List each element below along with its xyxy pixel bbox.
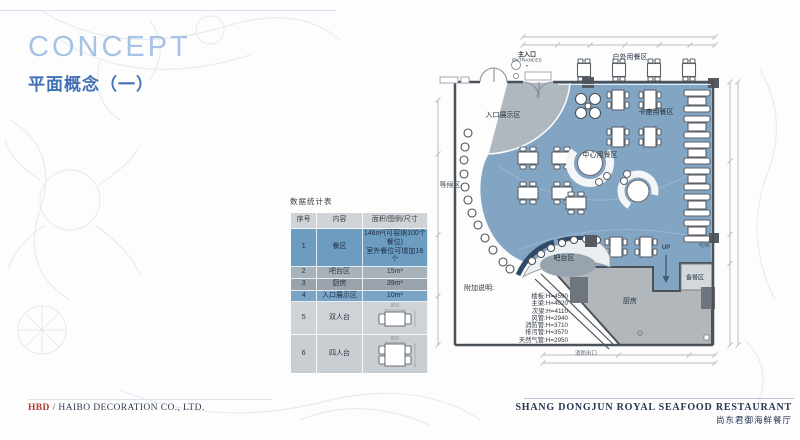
cell-no: 1 bbox=[291, 229, 317, 267]
cell-content: 双人台 bbox=[317, 302, 362, 335]
cell-no: 4 bbox=[291, 290, 317, 302]
table-row: 3 厨房 39m² bbox=[291, 278, 428, 290]
label-elevator: 电梯 bbox=[698, 241, 709, 249]
label-center-dining: 中心用餐区 bbox=[583, 150, 618, 160]
cell-content: 厨房 bbox=[317, 278, 362, 290]
label-entrance-display: 入口展示区 bbox=[486, 110, 521, 120]
restaurant-name-cn: 尚东君御海鲜餐厅 bbox=[392, 414, 792, 426]
company-brand: HBD bbox=[28, 403, 50, 413]
table-header-row: 序号 内容 面积/图例/尺寸 bbox=[291, 213, 428, 229]
cell-value: 15m² bbox=[362, 267, 427, 279]
notes-lines: 楼板:H=4590 主梁:H=4020 次梁:H=4110 风管:H=2940 … bbox=[478, 293, 568, 344]
table-row: 1 餐区 146m²(可容纳100个餐位) 室外餐位可增加16个 bbox=[291, 229, 428, 267]
floor-plan: 户外用餐区 主入口 ENTRANCES ⌄ 入口展示区 卡座用餐区 中心用餐区 … bbox=[428, 15, 758, 380]
label-booth-dining: 卡座用餐区 bbox=[639, 107, 674, 117]
note-line: 天然气管:H=2950 bbox=[478, 337, 568, 344]
note-line: 排污管:H=3570 bbox=[478, 329, 568, 336]
label-main-entrance: 主入口 ENTRANCES ⌄ bbox=[512, 52, 542, 67]
statistics-table: 序号 内容 面积/图例/尺寸 1 餐区 146m²(可容纳100个餐位) 室外餐… bbox=[290, 212, 428, 374]
cell-content: 吧台区 bbox=[317, 267, 362, 279]
table-row: 4 入口展示区 10m² bbox=[291, 290, 428, 302]
outside-planters bbox=[440, 77, 469, 83]
kitchen-fixture bbox=[704, 335, 709, 340]
label-prep-area: 备餐区 bbox=[686, 273, 704, 282]
table-row: 6 四人台 800 bbox=[291, 335, 428, 374]
four-seat-table-diagram bbox=[367, 342, 423, 368]
restaurant-footer: SHANG DONGJUN ROYAL SEAFOOD RESTAURANT 尚… bbox=[392, 402, 792, 426]
page-subtitle: 平面概念（一） bbox=[28, 70, 191, 95]
cell-content: 四人台 bbox=[317, 335, 362, 374]
cell-diagram-two-seat: 800 bbox=[362, 302, 427, 335]
cell-content: 入口展示区 bbox=[317, 290, 362, 302]
company-name: / HAIBO DECORATION CO., LTD. bbox=[50, 403, 205, 413]
label-outdoor-dining: 户外用餐区 bbox=[613, 52, 648, 62]
table-row: 5 双人台 800 bbox=[291, 302, 428, 335]
label-bar-area: 吧台区 bbox=[554, 253, 575, 263]
footer-divider-left bbox=[28, 399, 272, 400]
footer-divider-right bbox=[524, 398, 794, 399]
cell-content: 餐区 bbox=[317, 229, 362, 267]
cell-diagram-four-seat: 800 bbox=[362, 335, 427, 374]
statistics-table-title: 数据统计表 bbox=[290, 196, 430, 207]
cell-no: 6 bbox=[291, 335, 317, 374]
top-accent-line bbox=[0, 10, 336, 11]
slide-header: CONCEPT 平面概念（一） bbox=[28, 30, 191, 95]
two-seat-table-diagram bbox=[367, 309, 423, 329]
statistics-panel: 数据统计表 序号 内容 面积/图例/尺寸 1 餐区 146m²(可容纳100个餐… bbox=[290, 196, 430, 374]
note-line: 次梁:H=4110 bbox=[478, 308, 568, 315]
col-header-area: 面积/图例/尺寸 bbox=[362, 213, 427, 229]
cell-no: 2 bbox=[291, 267, 317, 279]
restaurant-name-en: SHANG DONGJUN ROYAL SEAFOOD RESTAURANT bbox=[392, 402, 792, 413]
label-fire-exit: 消防出口 bbox=[575, 349, 597, 357]
page-title: CONCEPT bbox=[28, 30, 191, 64]
notes-title: 附加说明: bbox=[464, 283, 494, 293]
col-header-content: 内容 bbox=[317, 213, 362, 229]
col-header-no: 序号 bbox=[291, 213, 317, 229]
label-up-stairs: UP bbox=[662, 245, 670, 251]
company-footer: HBD / HAIBO DECORATION CO., LTD. bbox=[28, 403, 205, 413]
cell-no: 5 bbox=[291, 302, 317, 335]
entrance-mat bbox=[525, 72, 551, 80]
cell-value: 10m² bbox=[362, 290, 427, 302]
note-line: 主梁:H=4020 bbox=[478, 300, 568, 307]
cell-no: 3 bbox=[291, 278, 317, 290]
label-waiting-area: 等候区 bbox=[440, 180, 461, 190]
table-row: 2 吧台区 15m² bbox=[291, 267, 428, 279]
cell-value: 39m² bbox=[362, 278, 427, 290]
label-kitchen: 厨房 bbox=[623, 296, 637, 306]
entrance-planter bbox=[514, 74, 519, 79]
cell-value: 146m²(可容纳100个餐位) 室外餐位可增加16个 bbox=[362, 229, 427, 267]
entrance-arrow-icon: ⌄ bbox=[512, 64, 542, 68]
